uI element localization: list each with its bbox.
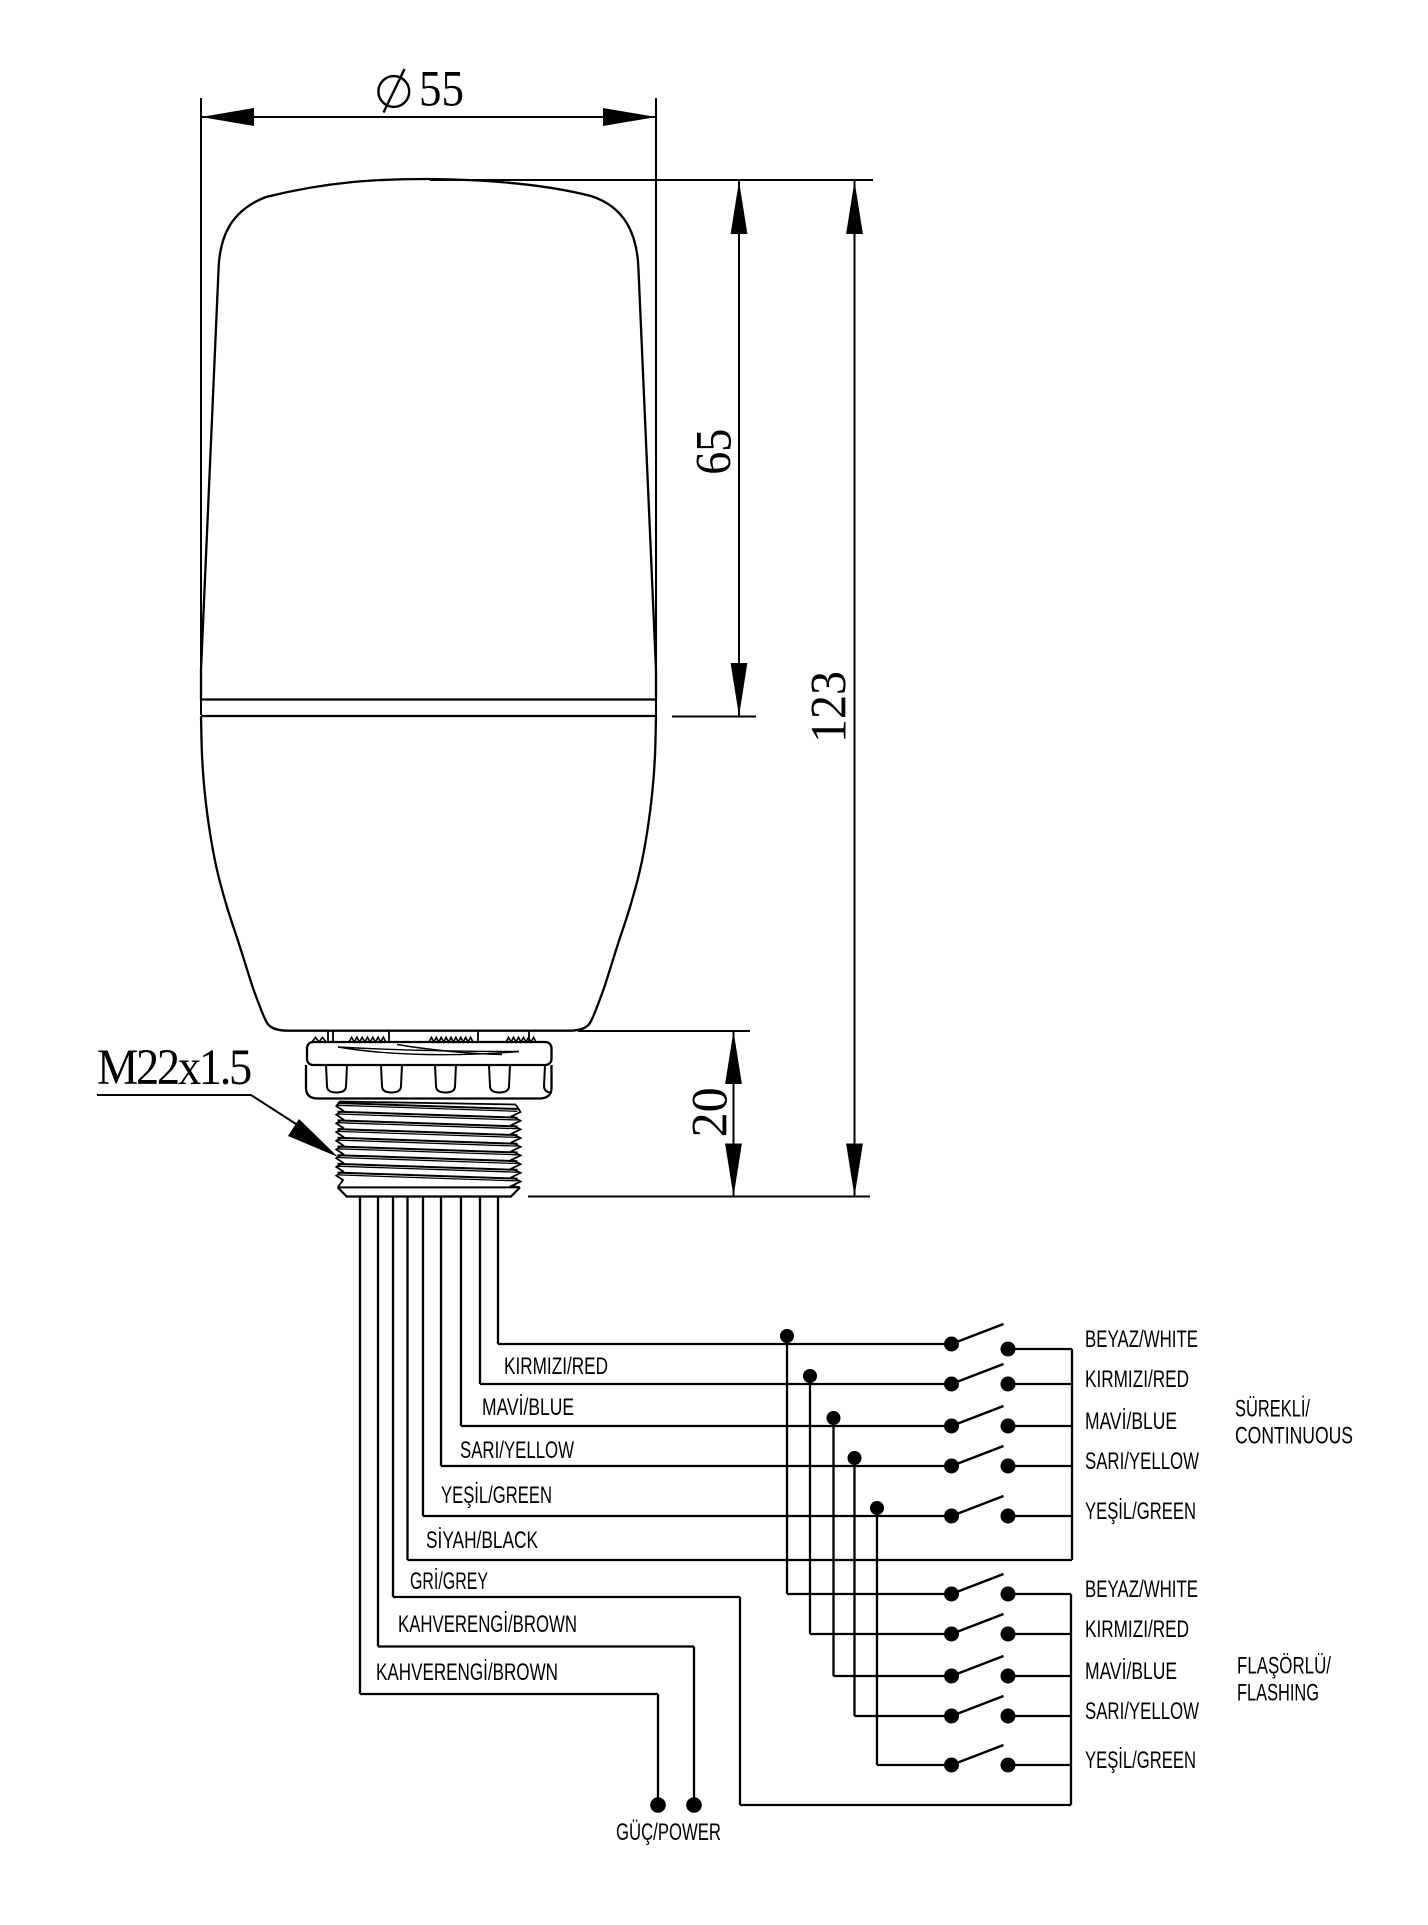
svg-text:GÜÇ/POWER: GÜÇ/POWER — [616, 1819, 721, 1846]
svg-text:FLAŞÖRLÜ/: FLAŞÖRLÜ/ — [1237, 1653, 1331, 1680]
svg-text:CONTINUOUS: CONTINUOUS — [1235, 1423, 1353, 1450]
svg-text:123: 123 — [802, 671, 858, 743]
svg-text:SÜREKLİ/: SÜREKLİ/ — [1235, 1396, 1310, 1423]
svg-text:KIRMIZI/RED: KIRMIZI/RED — [1085, 1616, 1189, 1643]
svg-text:SARI/YELLOW: SARI/YELLOW — [460, 1437, 574, 1464]
svg-text:FLASHING: FLASHING — [1237, 1680, 1319, 1707]
svg-text:20: 20 — [683, 1087, 739, 1137]
svg-text:KIRMIZI/RED: KIRMIZI/RED — [504, 1353, 608, 1380]
svg-text:M22x1.5: M22x1.5 — [97, 1040, 251, 1096]
svg-text:SARI/YELLOW: SARI/YELLOW — [1085, 1448, 1199, 1475]
svg-text:SİYAH/BLACK: SİYAH/BLACK — [426, 1527, 538, 1554]
svg-text:MAVİ/BLUE: MAVİ/BLUE — [1085, 1658, 1177, 1685]
svg-text:YEŞİL/GREEN: YEŞİL/GREEN — [1085, 1747, 1196, 1774]
svg-text:65: 65 — [687, 429, 743, 475]
svg-text:GRİ/GREY: GRİ/GREY — [410, 1568, 488, 1595]
svg-text:SARI/YELLOW: SARI/YELLOW — [1085, 1698, 1199, 1725]
svg-text:YEŞİL/GREEN: YEŞİL/GREEN — [1085, 1498, 1196, 1525]
svg-text:BEYAZ/WHITE: BEYAZ/WHITE — [1085, 1326, 1198, 1353]
svg-text:KAHVERENGİ/BROWN: KAHVERENGİ/BROWN — [398, 1611, 577, 1638]
svg-text:MAVİ/BLUE: MAVİ/BLUE — [482, 1394, 574, 1421]
svg-text:KIRMIZI/RED: KIRMIZI/RED — [1085, 1366, 1189, 1393]
svg-text:MAVİ/BLUE: MAVİ/BLUE — [1085, 1408, 1177, 1435]
svg-text:YEŞİL/GREEN: YEŞİL/GREEN — [441, 1482, 552, 1509]
svg-text:KAHVERENGİ/BROWN: KAHVERENGİ/BROWN — [376, 1659, 558, 1686]
svg-text:55: 55 — [419, 62, 464, 118]
svg-text:BEYAZ/WHITE: BEYAZ/WHITE — [1085, 1576, 1198, 1603]
